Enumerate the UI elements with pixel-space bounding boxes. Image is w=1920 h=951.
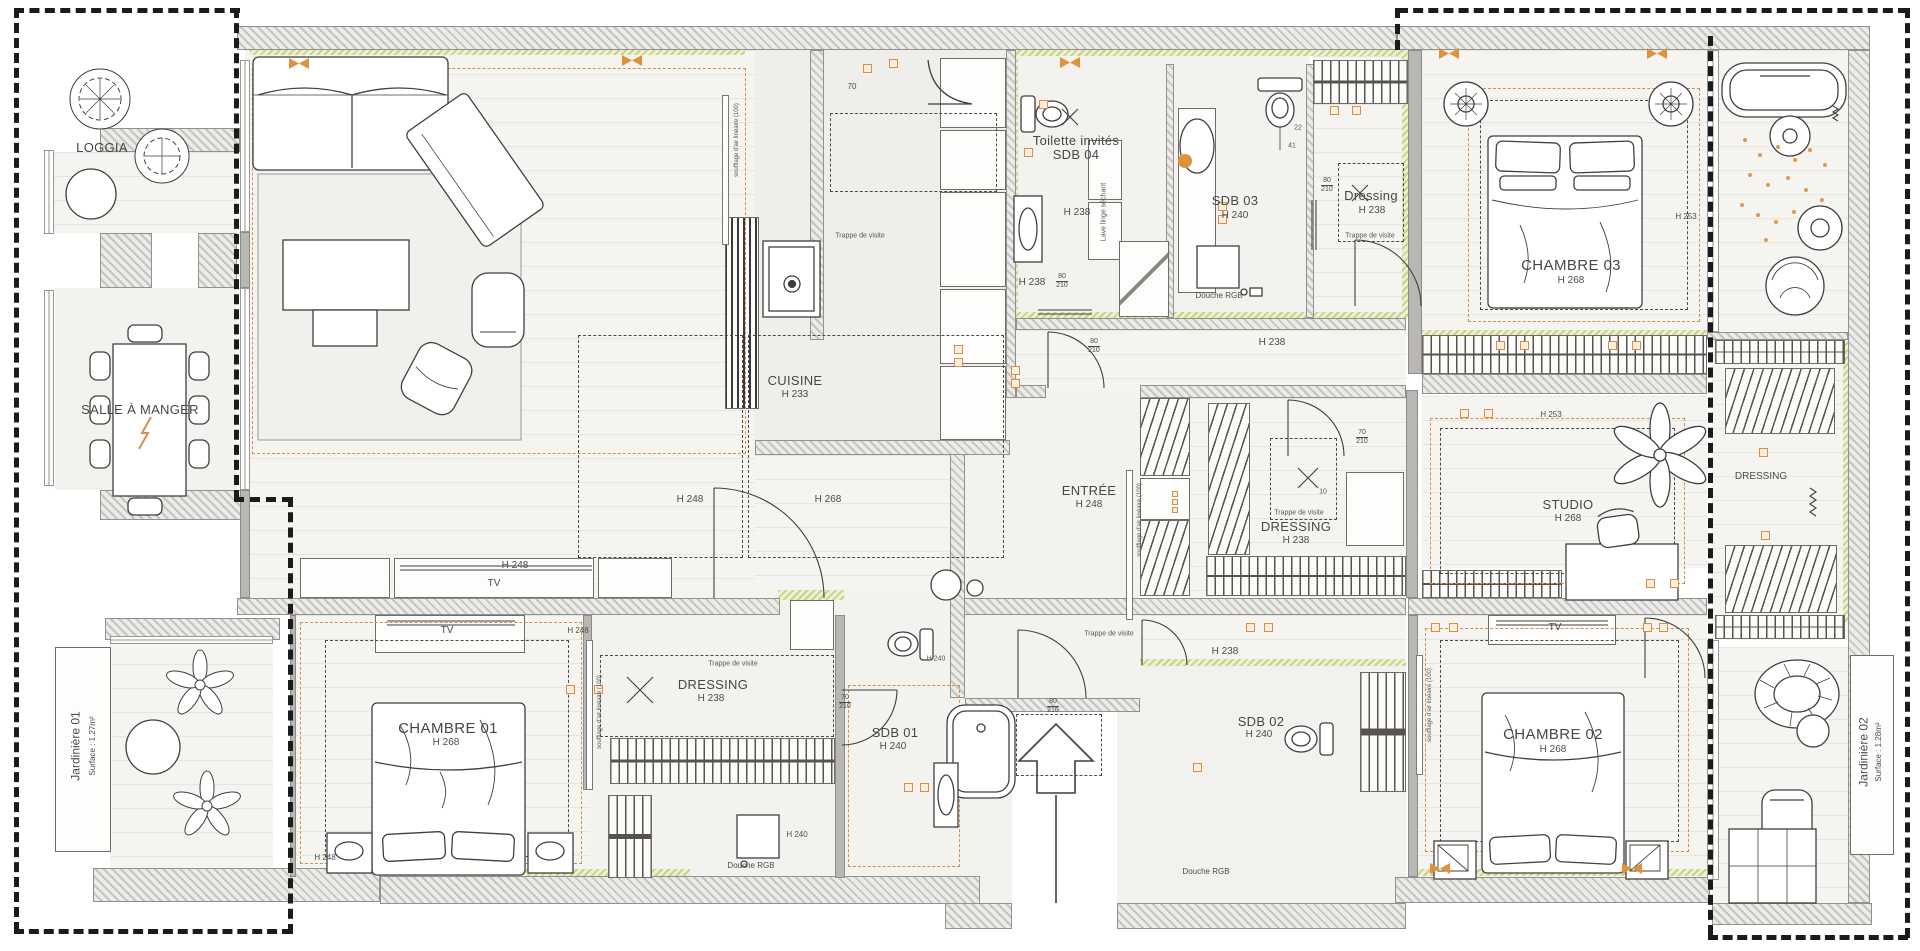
door-dim: 80210 [1056,273,1068,289]
outlet-icon [904,783,913,792]
appliance-label: Lave linge séchant [1100,183,1107,241]
door-icon [1355,240,1421,306]
hatch-label: Trappe de visite [835,232,885,239]
planter-label-jardiniere01: Jardinière 01 [70,711,83,780]
outlet-icon [1011,366,1020,375]
room-height-chambre02: H 268 [1540,745,1567,756]
room-height-dressing-ch01: H 238 [698,694,725,705]
outlet-icon [1431,623,1440,632]
room-label-cuisine: CUISINE [768,374,823,388]
plant-icon [70,69,189,183]
desk-icon [1729,829,1816,903]
ceiling-height-label: H 248 [502,561,529,572]
tv-label: TV [1549,623,1562,634]
room-label-dressing-ch01: DRESSING [678,678,748,692]
outlet-icon [1659,623,1668,632]
plant-icon [1798,206,1842,250]
room-height-studio: H 268 [1555,514,1582,525]
corridor-height-label: H 238 [1259,338,1286,349]
outlet-icon [1246,623,1255,632]
ceiling-height-label: H 253 [1675,213,1696,221]
shower-label: Douche RGB [1195,292,1242,300]
outlet-icon [1670,579,1679,588]
room-label-salle-a-manger: SALLE À MANGER [81,403,199,417]
room-label-studio: STUDIO [1543,498,1594,512]
planter-label-jardiniere02: Jardinière 02 [1858,717,1871,786]
outlet-icon [1172,499,1178,505]
room-label-chambre03: CHAMBRE 03 [1521,258,1621,274]
door-dim: 70210 [839,694,851,710]
outlet-icon [920,783,929,792]
dim-label: 22 [1294,124,1302,131]
room-height-dressing-centre: H 238 [1283,536,1310,547]
room-label-sdb04-line2: SDB 04 [1053,148,1100,162]
dim-label: 70 [848,83,857,91]
plant-icon [1610,403,1710,507]
room-label-sdb02: SDB 02 [1238,715,1285,729]
toilet-icon [1285,723,1333,755]
room-label-chambre01: CHAMBRE 01 [398,721,498,737]
shower-label: Douche RGB [727,862,774,870]
room-height-sdb04: H 238 [1064,208,1091,219]
room-height-chambre03: H 268 [1558,276,1585,287]
ceiling-height-label: H 248 [314,854,335,862]
room-label-sdb01: SDB 01 [872,726,919,740]
door-icon [714,488,824,598]
kitchen-sink-icon [763,241,820,317]
ceiling-cross-icon [1298,468,1318,488]
outlet-icon [1011,379,1020,388]
coffee-table-icon [283,240,409,310]
planter-surface-jardiniere02: Surface : 1.28m² [1875,722,1883,781]
outlet-icon [1496,341,1505,350]
sliding-door-icon [1312,200,1316,250]
ceiling-height-label: H 268 [815,495,842,506]
outlet-icon [1646,579,1655,588]
outlet-icon [1608,341,1617,350]
room-label-dressing-droit: DRESSING [1735,472,1787,483]
toilet-icon [1258,78,1302,150]
outlet-icon [1460,409,1469,418]
planter-surface-jardiniere01: Surface : 1.27m² [89,716,97,775]
table-icon [66,169,116,219]
dim-label: 10 [1319,488,1327,495]
door-icon [1645,618,1705,678]
outlet-icon [1759,448,1768,457]
tv-label: TV [488,579,501,590]
desk-icon [1566,544,1678,600]
hatch-label: Trappe de visite [1084,630,1134,637]
shower-height-label: H 240 [786,831,807,839]
outlet-icon [1761,531,1770,540]
room-height-cuisine: H 233 [782,390,809,401]
door-icon [1142,620,1187,665]
vent-label: soufflage d'air linéaire (100) [734,103,740,177]
room-label-entree: ENTRÉE [1062,484,1117,498]
vent-label: soufflage d'air linéaire (100) [597,675,603,749]
outlet-icon [1632,341,1641,350]
floor-plan: LOGGIA SALLE À MANGER CUISINE H 233 Trap… [0,0,1920,951]
outlet-icon [1172,507,1178,513]
outlet-icon [1193,763,1202,772]
ceiling-height-label: H 253 [1540,411,1561,419]
outlet-icon [1264,623,1273,632]
side-table-icon [313,310,377,346]
basin-icon [967,580,983,596]
tv-label: TV [441,626,454,637]
outlet-icon [889,59,898,68]
entrance-arrow-icon [1019,724,1093,903]
room-height-chambre01: H 268 [433,738,460,749]
shower-label: Douche RGB [1182,868,1229,876]
vent-label: soufflage d'air linéaire (100) [1427,668,1433,742]
outlet-icon [1520,341,1529,350]
room-label-dressing-centre: DRESSING [1261,520,1331,534]
window-spring-icon [1810,488,1816,516]
table-icon [126,720,180,774]
room-height-sdb03: H 240 [1222,211,1249,222]
ceiling-cross-icon [627,677,653,703]
outlet-icon [1352,106,1361,115]
outlet-icon [1484,409,1493,418]
tv-icon [400,566,592,570]
door-dim: 80210 [1047,698,1059,714]
chair-icon [1595,506,1640,548]
outlet-icon [1039,100,1048,109]
room-height-sdb01: H 240 [880,742,907,753]
door-icon [1018,630,1086,698]
ceiling-height-label: H 248 [567,627,588,635]
door-dim: 80210 [1088,338,1100,354]
door-icon [1288,400,1344,456]
outlet-icon [1330,106,1339,115]
outlet-icon [1449,623,1458,632]
room-height-label: H 238 [1019,278,1046,289]
washbasin-icon [934,763,958,827]
outlet-icon [1172,491,1178,497]
corridor-height-label: H 238 [1212,647,1239,658]
room-label-dressing-haut: Dressing [1344,189,1398,203]
room-label-sdb04-line1: Toilette invités [1033,134,1119,148]
room-height-sdb02: H 240 [1246,730,1273,741]
furniture-layer [0,0,1920,951]
plant-icon [1766,257,1824,315]
outlet-icon [954,345,963,354]
outlet-icon [1024,148,1033,157]
outlet-icon [863,64,872,73]
room-label-sdb03: SDB 03 [1212,194,1259,208]
hatch-label: Trappe de visite [708,660,758,667]
hatch-label: Trappe de visite [1345,232,1395,239]
room-label-chambre02: CHAMBRE 02 [1503,727,1603,743]
kitchen-hood-icon [928,60,972,104]
basin-icon [931,570,961,600]
outlet-icon [954,358,963,367]
outlet-icon [566,685,575,694]
table-icon [1797,715,1829,747]
outlet-icon [1643,623,1652,632]
shower-icon [737,815,779,867]
bed-icon [1434,693,1668,879]
door-dim: 70210 [1356,429,1368,445]
shower-icon [1197,246,1262,296]
bathtub-icon [1722,63,1846,156]
washbasin-icon [1178,119,1214,173]
dim-label: 41 [1288,142,1296,149]
wicker-chair-icon [1755,660,1839,728]
armchair-icon [472,273,524,347]
sliding-door-icon [1038,310,1092,314]
hatch-label: Trappe de visite [1274,509,1324,516]
ceiling-height-label: H 248 [677,495,704,506]
washbasin-icon [1014,196,1042,262]
wc-height-label: H 240 [927,655,946,662]
door-dim: 80210 [1321,177,1333,193]
room-height-entree: H 248 [1076,500,1103,511]
vent-label: soufflage d'air linéaire (100) [1137,483,1143,557]
room-height-dressing-haut: H 238 [1359,206,1386,217]
room-label-loggia: LOGGIA [76,141,128,155]
